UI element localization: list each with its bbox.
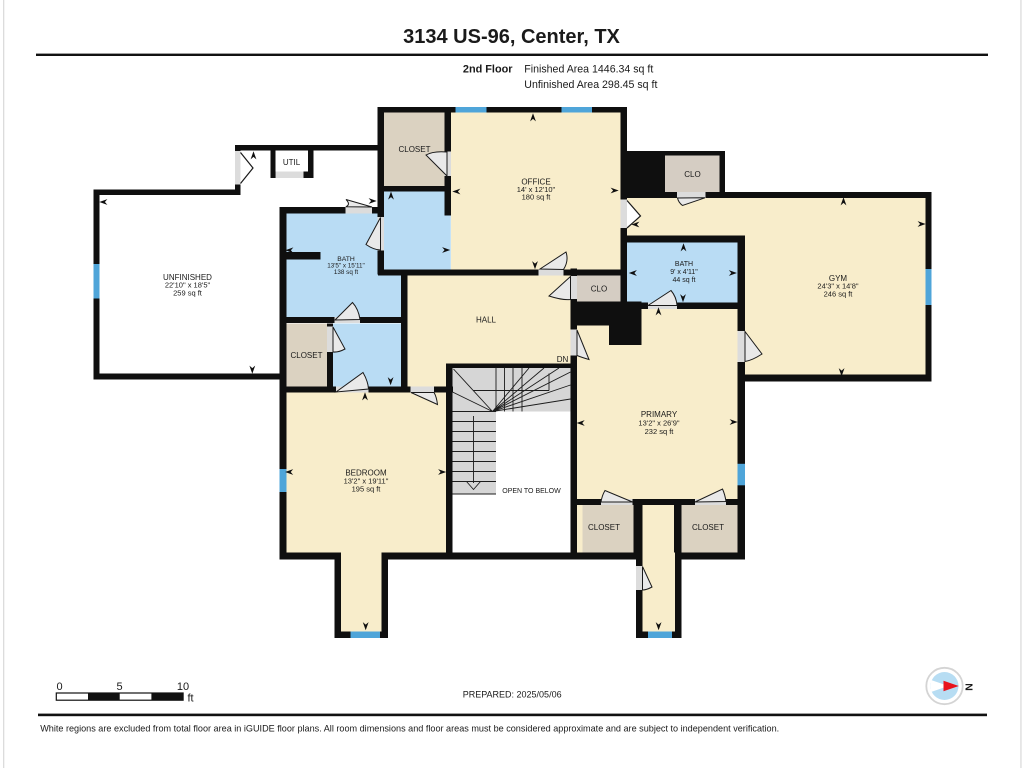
svg-text:3134 US-96, Center, TX: 3134 US-96, Center, TX — [403, 26, 620, 48]
svg-text:195 sq ft: 195 sq ft — [352, 485, 382, 494]
svg-text:White regions are excluded fro: White regions are excluded from total fl… — [40, 724, 779, 734]
svg-text:246 sq ft: 246 sq ft — [824, 289, 854, 298]
svg-text:44 sq ft: 44 sq ft — [673, 277, 696, 284]
svg-text:CLOSET: CLOSET — [398, 145, 430, 154]
svg-text:DN: DN — [557, 355, 569, 364]
svg-text:ft: ft — [188, 693, 194, 705]
svg-text:232 sq ft: 232 sq ft — [645, 427, 675, 436]
svg-text:BATH: BATH — [675, 261, 693, 268]
svg-text:CLO: CLO — [684, 170, 700, 179]
svg-text:Unfinished Area 298.45 sq ft: Unfinished Area 298.45 sq ft — [524, 79, 657, 91]
svg-text:13'2" x 26'9": 13'2" x 26'9" — [638, 419, 679, 428]
svg-text:9' x 4'11": 9' x 4'11" — [670, 269, 698, 276]
svg-text:5: 5 — [116, 681, 122, 693]
svg-text:PRIMARY: PRIMARY — [641, 410, 678, 419]
svg-text:CLOSET: CLOSET — [290, 351, 322, 360]
svg-text:HALL: HALL — [476, 316, 497, 325]
svg-text:PREPARED: 2025/05/06: PREPARED: 2025/05/06 — [463, 690, 562, 700]
svg-text:CLO: CLO — [591, 284, 607, 293]
svg-text:OPEN TO BELOW: OPEN TO BELOW — [502, 488, 561, 495]
svg-text:Finished Area 1446.34 sq ft: Finished Area 1446.34 sq ft — [524, 64, 653, 76]
svg-text:138 sq ft: 138 sq ft — [334, 269, 358, 276]
svg-text:CLOSET: CLOSET — [692, 523, 724, 532]
svg-text:CLOSET: CLOSET — [588, 523, 620, 532]
svg-text:N: N — [962, 683, 974, 691]
svg-text:UTIL: UTIL — [283, 158, 301, 167]
svg-text:2nd Floor: 2nd Floor — [463, 64, 513, 76]
svg-text:10: 10 — [177, 681, 189, 693]
svg-text:0: 0 — [56, 681, 62, 693]
svg-text:180 sq ft: 180 sq ft — [522, 193, 552, 202]
svg-text:259 sq ft: 259 sq ft — [173, 288, 203, 297]
